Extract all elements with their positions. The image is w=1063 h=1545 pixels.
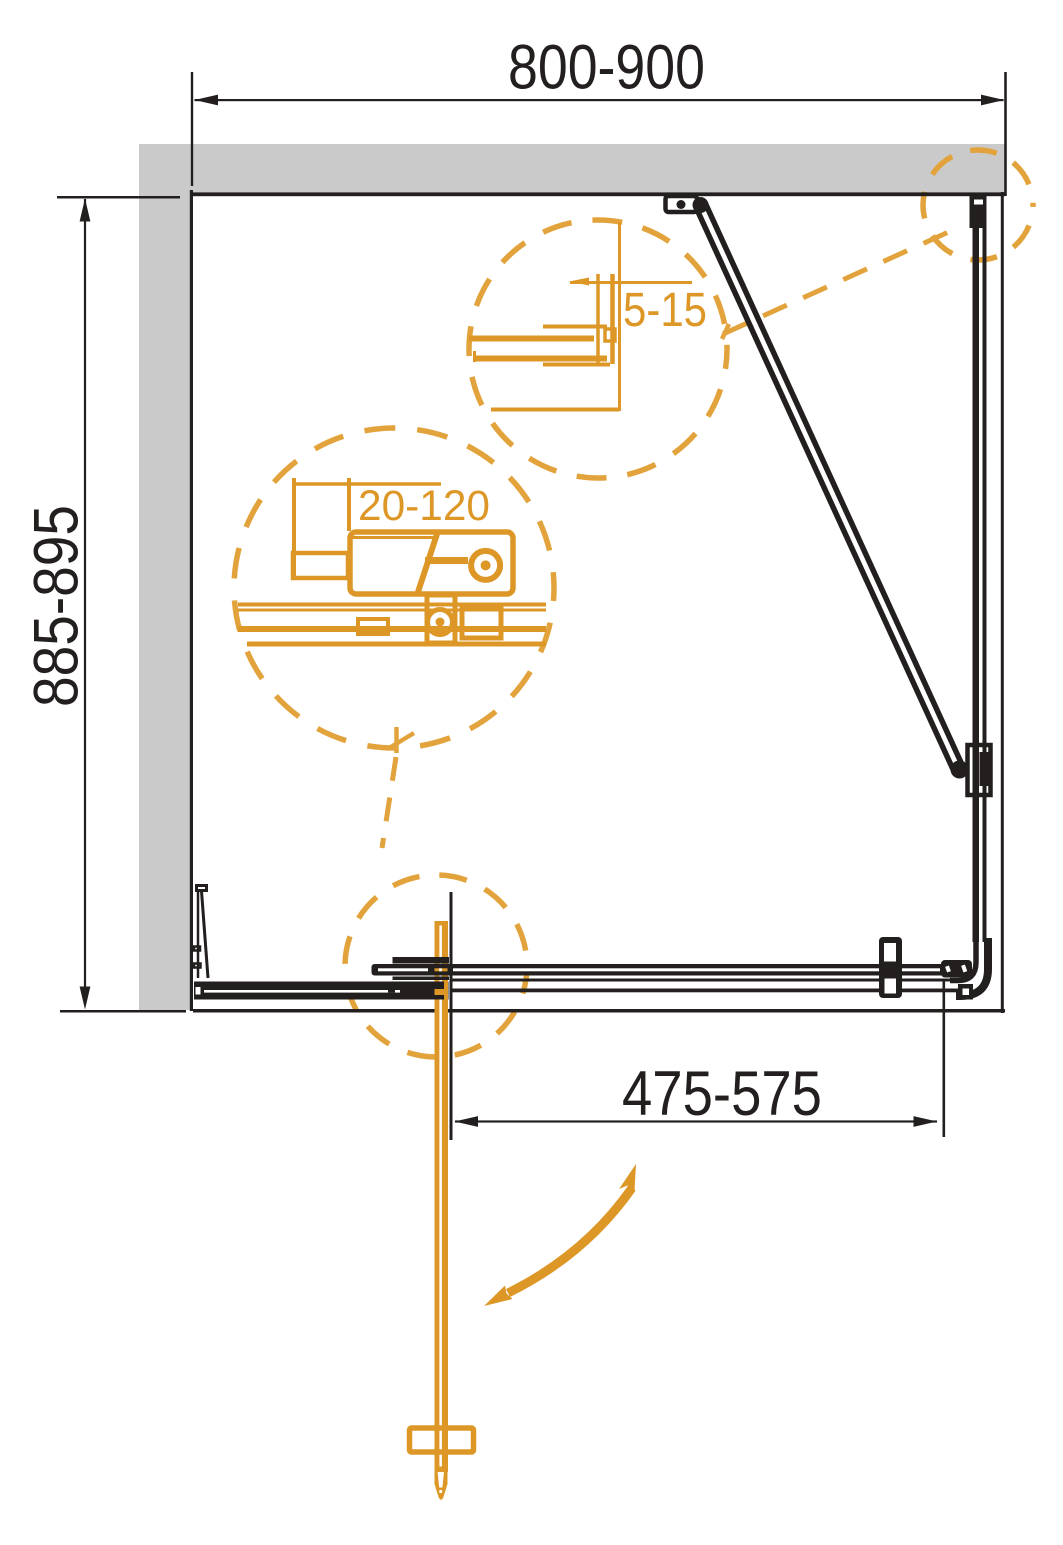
svg-text:475-575: 475-575 bbox=[622, 1059, 822, 1129]
svg-text:885-895: 885-895 bbox=[22, 505, 92, 707]
svg-text:5-15: 5-15 bbox=[623, 284, 707, 337]
svg-text:20-120: 20-120 bbox=[358, 482, 490, 530]
svg-text:800-900: 800-900 bbox=[508, 33, 705, 103]
